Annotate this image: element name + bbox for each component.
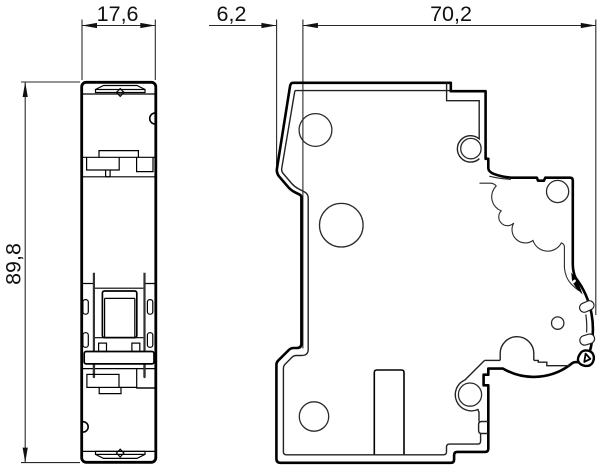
svg-text:70,2: 70,2 <box>430 2 472 26</box>
svg-text:6,2: 6,2 <box>217 2 247 26</box>
svg-text:89,8: 89,8 <box>2 243 26 285</box>
svg-text:17,6: 17,6 <box>97 2 139 26</box>
